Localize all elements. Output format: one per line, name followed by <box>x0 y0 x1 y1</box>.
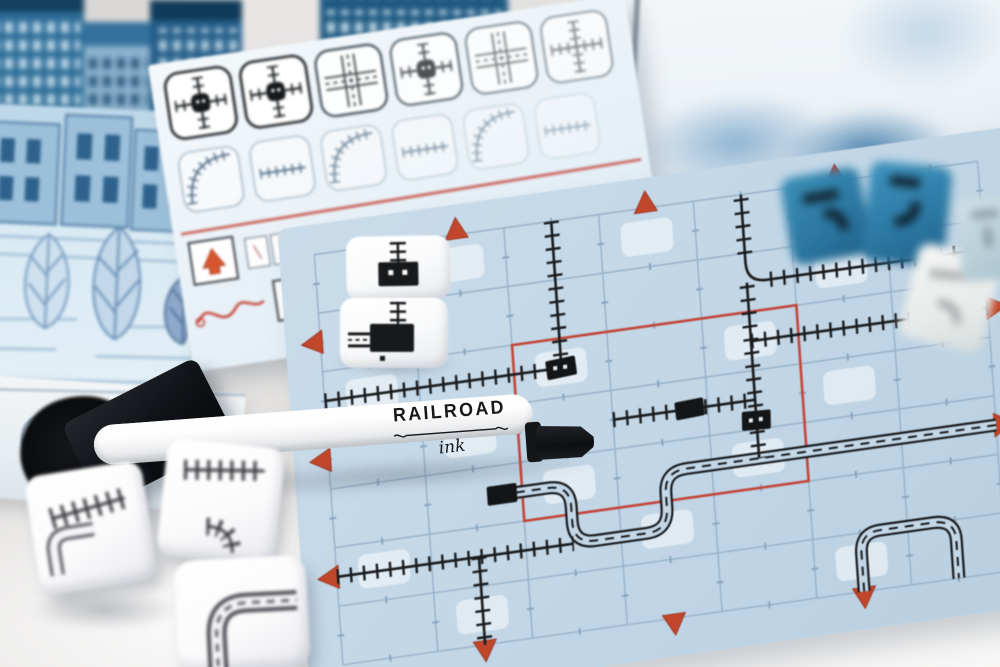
white-die-3 <box>173 555 311 667</box>
blue-die-1 <box>779 166 873 267</box>
pen-tip <box>535 424 594 460</box>
pen-barrel: RAILROAD ink <box>93 393 535 466</box>
die-symbol <box>954 193 1000 259</box>
die-face-top <box>346 235 451 301</box>
photo-stage: RAILROAD ink <box>0 0 1000 667</box>
white-die-1 <box>23 460 158 597</box>
die-symbol <box>779 166 872 259</box>
pen-brand: RAILROAD ink <box>374 396 528 463</box>
die-face-front <box>340 298 448 368</box>
straight-rail-icon <box>23 460 158 595</box>
station-rail-icon <box>346 235 451 301</box>
die-symbol <box>863 160 953 250</box>
white-die-2 <box>156 437 286 567</box>
tree-icon <box>23 233 71 329</box>
station-rail-road-icon <box>340 298 448 368</box>
red-scroll-flourish-icon <box>196 299 265 322</box>
marker-pen: RAILROAD ink <box>74 398 614 528</box>
straight-and-curved-rail-icon <box>156 437 286 567</box>
watercolor-blotch <box>833 0 1000 97</box>
board-die <box>339 234 458 374</box>
curved-road-icon <box>173 555 312 667</box>
die-shadow <box>30 590 180 630</box>
tree-icon <box>91 226 142 340</box>
pale-die-1 <box>954 193 1000 283</box>
